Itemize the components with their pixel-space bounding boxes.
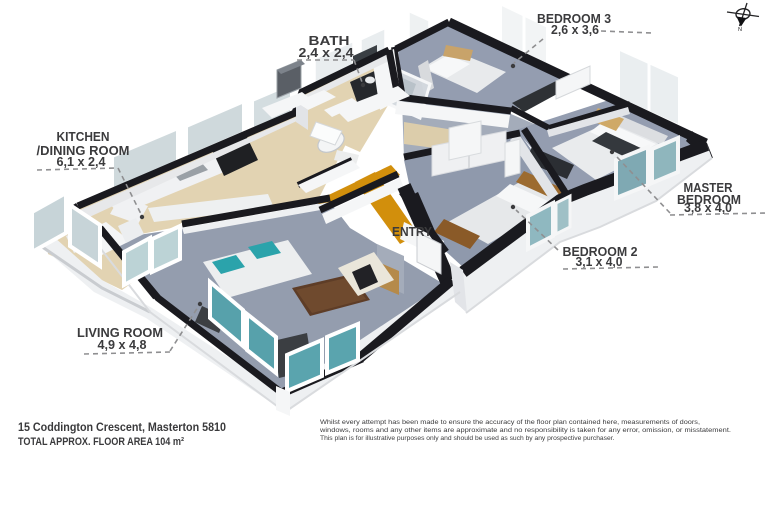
svg-text:KITCHEN: KITCHEN — [57, 129, 110, 144]
svg-text:4,9 x 4,8: 4,9 x 4,8 — [98, 337, 147, 352]
svg-text:2,4 x 2,4: 2,4 x 2,4 — [299, 45, 355, 60]
svg-text:This plan is for illustrative: This plan is for illustrative purposes o… — [320, 435, 615, 442]
svg-text:Whilst every attempt has been: Whilst every attempt has been made to en… — [320, 419, 700, 426]
svg-text:ENTRY: ENTRY — [392, 224, 432, 239]
svg-text:N: N — [738, 27, 742, 33]
svg-text:15 Coddington Crescent, Master: 15 Coddington Crescent, Masterton 5810 — [18, 422, 226, 434]
svg-text:3,8 x 4,0: 3,8 x 4,0 — [684, 200, 732, 215]
svg-text:2,6 x 3,6: 2,6 x 3,6 — [551, 22, 599, 37]
svg-text:windows, rooms and any other i: windows, rooms and any other items are a… — [319, 427, 731, 434]
svg-text:6,1 x 2,4: 6,1 x 2,4 — [57, 154, 107, 169]
svg-text:3,1 x 4,0: 3,1 x 4,0 — [576, 254, 623, 269]
svg-text:TOTAL APPROX. FLOOR AREA 104 m: TOTAL APPROX. FLOOR AREA 104 m² — [18, 436, 184, 448]
